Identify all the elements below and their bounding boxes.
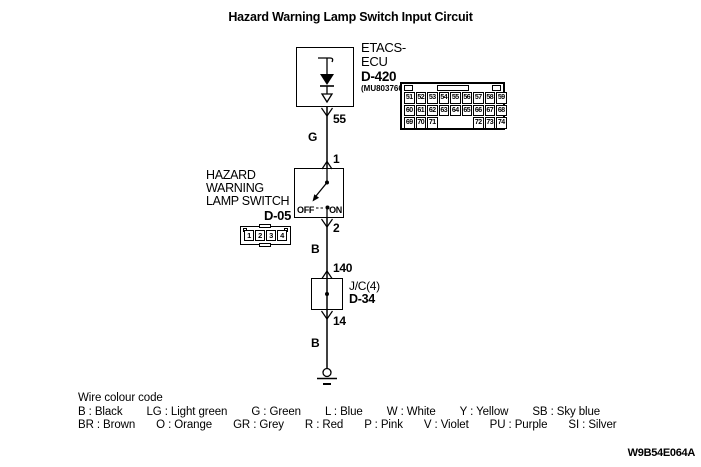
etacs-name-line2: ECU: [361, 55, 406, 69]
wiring-diagram-canvas: Hazard Warning Lamp Switch Input Circuit…: [0, 0, 701, 467]
pin-row: 606162636465666768: [404, 105, 507, 117]
wire-etacs-to-switch: [322, 107, 333, 169]
pin-cell-64: 64: [450, 105, 461, 117]
pin-label-2: 2: [333, 221, 339, 235]
legend-row: BR : BrownO : OrangeGR : GreyR : RedP : …: [78, 419, 637, 433]
switch-label-block: HAZARD WARNING LAMP SWITCH D-05: [206, 169, 291, 222]
legend-heading: Wire colour code: [78, 392, 637, 406]
pin-cell-2: 2: [255, 230, 265, 241]
pin-cell-60: 60: [404, 105, 415, 117]
switch-off-label: OFF: [297, 205, 314, 215]
connector-tab-right: [492, 85, 501, 91]
terminal-fork-14: [322, 311, 333, 319]
pin-label-140: 140: [333, 261, 352, 275]
connector-tab-center: [437, 85, 469, 91]
wire-junction-to-ground: [322, 310, 333, 368]
pin-cell-71: 71: [427, 117, 438, 129]
connector-tab-left: [404, 85, 413, 91]
pin-cell-51: 51: [404, 92, 415, 104]
pin-label-55: 55: [333, 112, 346, 126]
pin-cell-65: 65: [462, 105, 473, 117]
pin-cell-69: 69: [404, 117, 415, 129]
pin-cell-59: 59: [496, 92, 507, 104]
pin-row: 697071727374: [404, 117, 507, 129]
pin-row: 515253545556575859: [404, 92, 507, 104]
pin-cell-54: 54: [439, 92, 450, 104]
wire-color-label-b-upper: B: [311, 242, 319, 256]
legend-item-si: SI : Silver: [568, 419, 616, 433]
legend-item-lg: LG : Light green: [146, 406, 227, 420]
legend-item-l: L : Blue: [325, 406, 363, 420]
legend-item-p: P : Pink: [364, 419, 403, 433]
legend-row: B : BlackLG : Light greenG : GreenL : Bl…: [78, 406, 637, 420]
diagram-title: Hazard Warning Lamp Switch Input Circuit: [0, 10, 701, 24]
switch-connector-id: D-05: [206, 209, 291, 222]
terminal-fork-55: [322, 108, 333, 116]
connector-tab-topcenter: [259, 224, 271, 228]
legend-item-gr: GR : Grey: [233, 419, 284, 433]
wire-color-label-g: G: [308, 130, 317, 144]
etacs-name-line1: ETACS-: [361, 41, 406, 55]
pin-cell-61: 61: [416, 105, 427, 117]
etacs-connector-d420-pinout: 5152535455565758596061626364656667686970…: [400, 82, 505, 130]
pin-cell-4: 4: [277, 230, 287, 241]
connector-pin-row: 1234: [244, 230, 287, 241]
pin-cell-57: 57: [473, 92, 484, 104]
pin-cell-63: 63: [439, 105, 450, 117]
junction-connector-id: D-34: [349, 292, 375, 306]
pin-cell-70: 70: [416, 117, 427, 129]
legend-item-w: W : White: [387, 406, 436, 420]
etacs-ecu-box: [296, 47, 354, 107]
junction-connector-box: [311, 278, 343, 310]
legend-item-v: V : Violet: [424, 419, 469, 433]
ground-symbol: [317, 369, 337, 385]
terminal-fork-2: [322, 219, 333, 227]
pin-cell-66: 66: [473, 105, 484, 117]
pin-cell-1: 1: [244, 230, 254, 241]
pin-cell-74: 74: [496, 117, 507, 129]
legend-item-pu: PU : Purple: [490, 419, 548, 433]
legend-item-br: BR : Brown: [78, 419, 135, 433]
legend-item-r: R : Red: [305, 419, 343, 433]
pin-cell-3: 3: [266, 230, 276, 241]
pin-cell-53: 53: [427, 92, 438, 104]
document-code: W9B54E064A: [590, 447, 695, 459]
pin-cell-73: 73: [485, 117, 496, 129]
pin-cell-67: 67: [485, 105, 496, 117]
legend-item-sb: SB : Sky blue: [532, 406, 600, 420]
wire-switch-to-junction: [322, 218, 333, 279]
pin-cell-72: 72: [473, 117, 484, 129]
legend-item-b: B : Black: [78, 406, 122, 420]
pin-cell-68: 68: [496, 105, 507, 117]
legend-item-o: O : Orange: [156, 419, 212, 433]
legend-item-g: G : Green: [251, 406, 301, 420]
pin-label-14: 14: [333, 314, 346, 328]
switch-label-line3: LAMP SWITCH: [206, 195, 291, 208]
pin-cell-62: 62: [427, 105, 438, 117]
ground-circle: [323, 369, 331, 377]
pin-cell-58: 58: [485, 92, 496, 104]
wire-color-label-b-lower: B: [311, 336, 319, 350]
connector-tab-bottomcenter: [259, 243, 271, 247]
pin-cell-52: 52: [416, 92, 427, 104]
switch-connector-d05-pinout: 1234: [240, 226, 291, 245]
connector-pin-rows: 5152535455565758596061626364656667686970…: [404, 92, 507, 129]
hazard-switch-box: OFF ON: [294, 168, 344, 218]
pin-label-1: 1: [333, 152, 339, 166]
switch-on-label: ON: [329, 205, 342, 215]
pin-cell-55: 55: [450, 92, 461, 104]
wire-colour-legend: Wire colour code B : BlackLG : Light gre…: [78, 392, 637, 433]
pin-cell-56: 56: [462, 92, 473, 104]
legend-item-y: Y : Yellow: [460, 406, 509, 420]
junction-label: J/C(4): [349, 279, 380, 293]
